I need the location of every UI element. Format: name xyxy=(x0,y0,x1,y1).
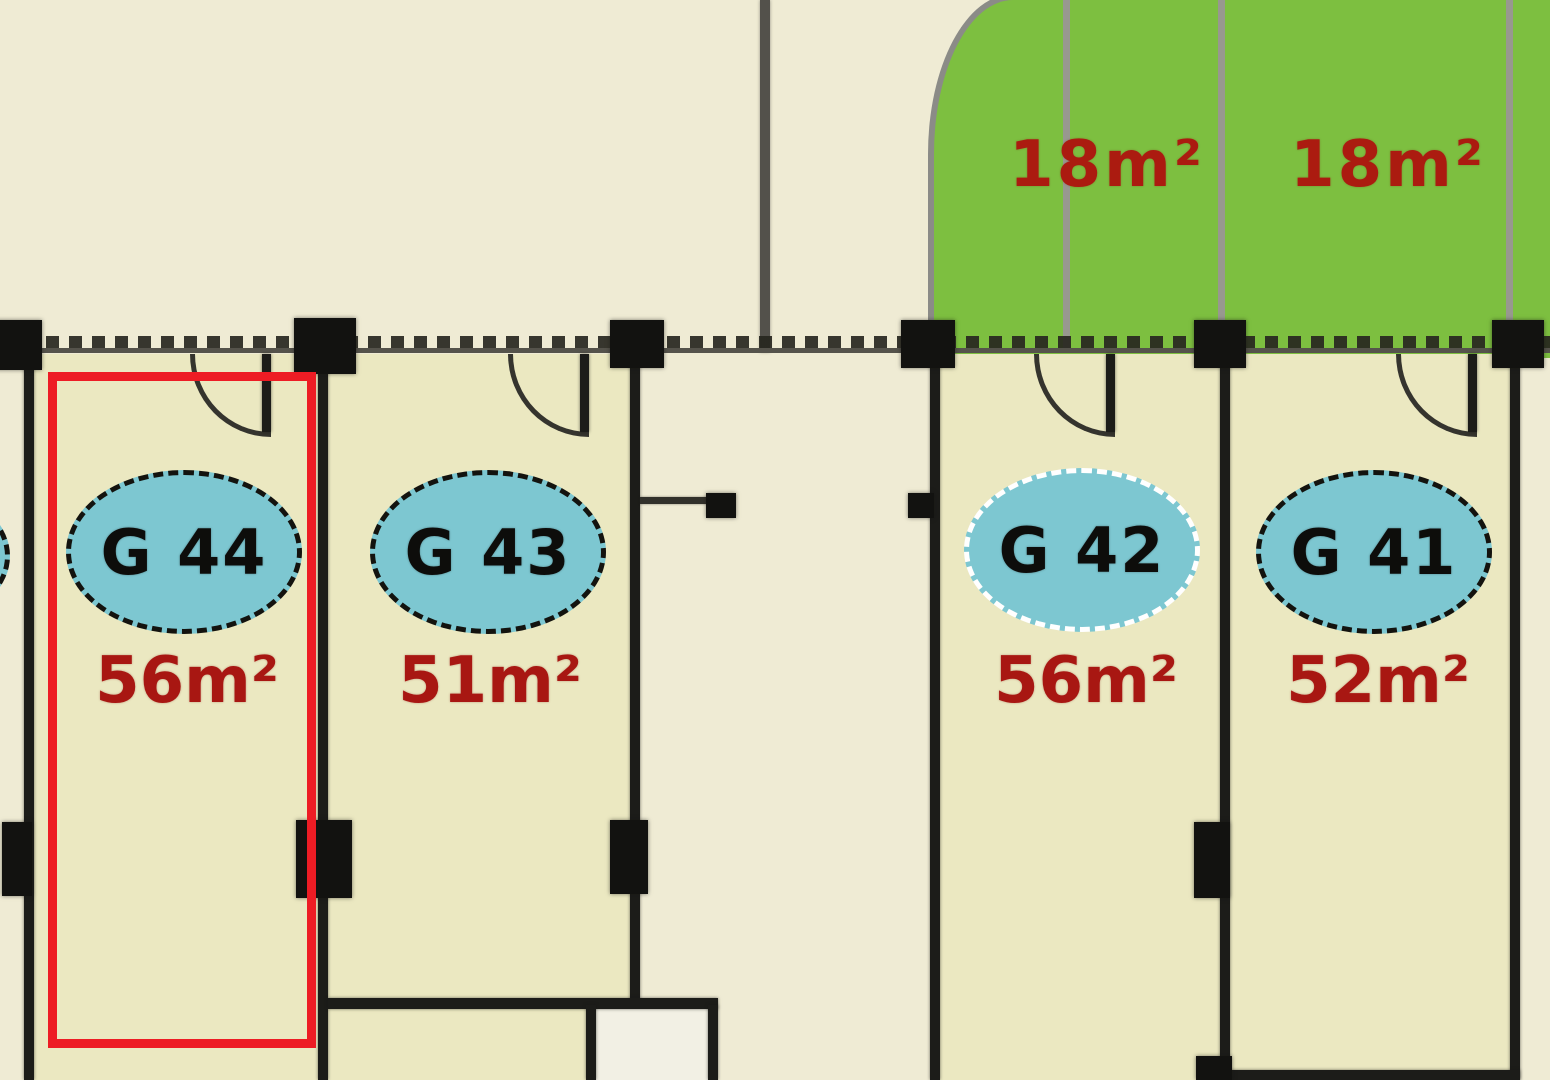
wall-node xyxy=(610,320,664,368)
unit-area-g43: 51m² xyxy=(340,644,640,718)
floor-plan-canvas: 18m² 18m² G 44 G 4 xyxy=(0,0,1550,1080)
door-leaf-g42 xyxy=(1106,354,1115,432)
wall-node xyxy=(0,320,42,370)
corridor-stub-cap xyxy=(706,493,736,518)
wall-node xyxy=(1194,320,1246,368)
corridor-stub-cap xyxy=(908,493,934,518)
unit-badge-partial-left xyxy=(0,500,10,612)
wall-left-boundary xyxy=(24,354,34,1080)
unit-badge-g43[interactable]: G 43 xyxy=(370,470,606,634)
door-leaf-g41 xyxy=(1468,354,1477,432)
wall-node xyxy=(901,320,955,368)
wall-node xyxy=(610,820,648,894)
garden-area-label: 18m² xyxy=(957,128,1257,202)
unit-badge-g41[interactable]: G 41 xyxy=(1256,470,1492,634)
wall-node xyxy=(1194,822,1230,898)
unit-badge-label: G 42 xyxy=(999,514,1166,587)
wall-node xyxy=(2,822,32,896)
dashed-boundary-wall xyxy=(0,336,1550,348)
door-leaf-g43 xyxy=(580,354,589,432)
wall-g41-bottom xyxy=(1220,1070,1520,1080)
unit-badge-g42[interactable]: G 42 xyxy=(964,468,1200,632)
wall-node xyxy=(294,318,356,374)
unit-badge-label: G 43 xyxy=(405,516,572,589)
annex-room xyxy=(596,1009,708,1080)
wall-annex-left xyxy=(586,1005,596,1080)
selection-highlight-g44 xyxy=(48,372,316,1048)
wall-node xyxy=(1492,320,1544,368)
wall-annex-right xyxy=(708,1005,718,1080)
unit-area-g41: 52m² xyxy=(1228,644,1528,718)
garden-area-label: 18m² xyxy=(1238,128,1538,202)
wall-annex-top xyxy=(328,998,718,1009)
wall-node xyxy=(1196,1056,1232,1080)
boundary-wall-line xyxy=(0,348,1550,353)
wall-upper-vertical xyxy=(760,0,770,352)
unit-area-g42: 56m² xyxy=(936,644,1236,718)
unit-badge-label: G 41 xyxy=(1291,516,1458,589)
